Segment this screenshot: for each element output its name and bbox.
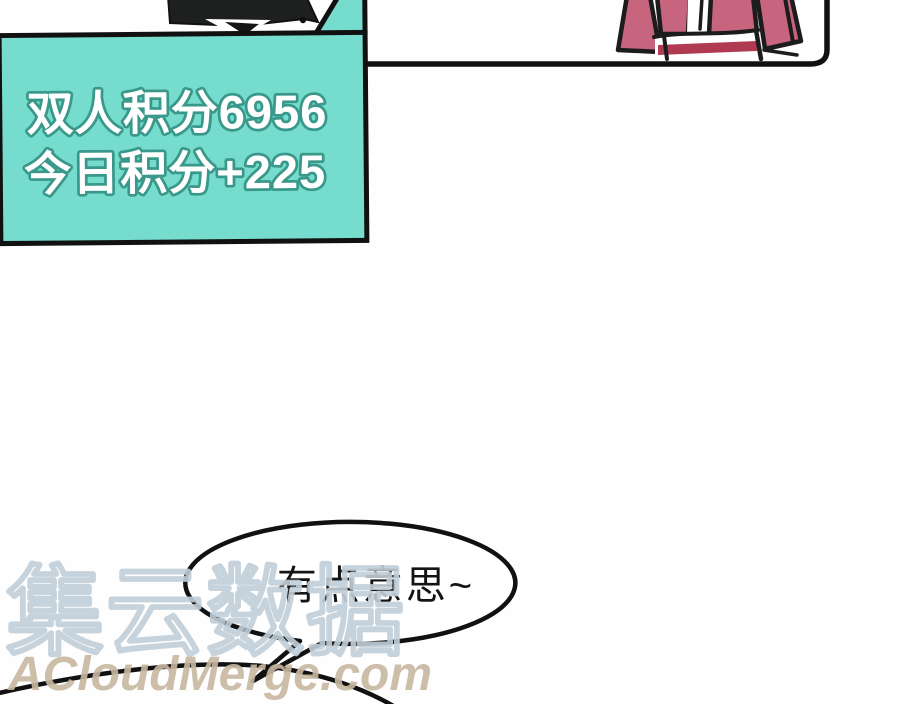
comic-art: 双人积分6956 今日积分+225 有点意思~ 集云数据 ACloudMerge… xyxy=(0,0,900,704)
jacket-body-left xyxy=(657,0,690,34)
score-line1: 双人积分6956 xyxy=(27,85,328,141)
score-line2: 今日积分+225 xyxy=(24,145,326,201)
pink-jacket-character xyxy=(618,0,801,59)
watermark-site: ACloudMerge.com xyxy=(7,648,432,701)
jacket-body-right xyxy=(709,0,757,34)
suit-button-dot xyxy=(300,17,306,23)
comic-page: 双人积分6956 今日积分+225 有点意思~ 集云数据 ACloudMerge… xyxy=(0,0,900,704)
jacket-left-sleeve xyxy=(618,0,660,52)
score-box: 双人积分6956 今日积分+225 xyxy=(0,0,368,244)
zipper-cord xyxy=(700,0,702,29)
watermark-layer: 集云数据 ACloudMerge.com xyxy=(5,557,432,701)
